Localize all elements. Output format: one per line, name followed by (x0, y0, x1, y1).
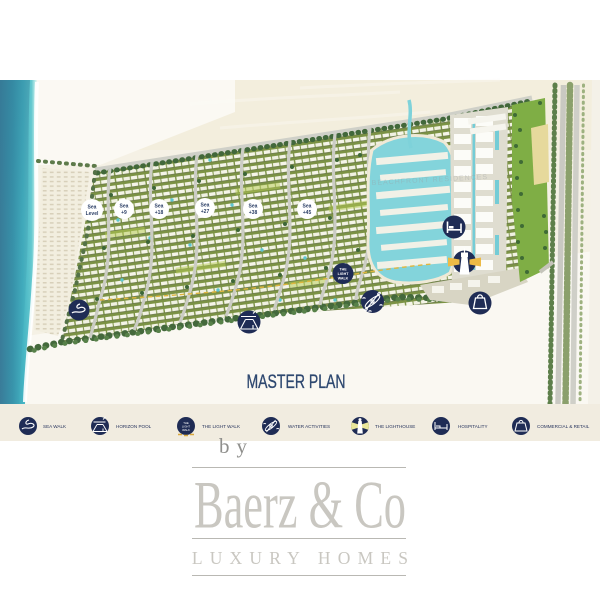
svg-text:Level: Level (86, 211, 99, 217)
svg-text:Sea: Sea (201, 203, 210, 209)
svg-text:+38: +38 (249, 210, 258, 216)
svg-text:Sea: Sea (303, 204, 312, 210)
svg-text:HORIZON POOL: HORIZON POOL (116, 424, 152, 429)
svg-text:THE: THE (339, 268, 347, 272)
svg-text:Sea: Sea (88, 205, 97, 211)
svg-text:+18: +18 (155, 210, 164, 216)
svg-text:WALK: WALK (182, 428, 190, 432)
svg-text:+45: +45 (303, 210, 312, 216)
svg-text:Sea: Sea (120, 204, 129, 210)
svg-text:Sea: Sea (249, 204, 258, 210)
svg-text:COMMERCIAL & RETAIL: COMMERCIAL & RETAIL (537, 424, 590, 429)
svg-text:WATER ACTIVITIES: WATER ACTIVITIES (288, 424, 330, 429)
svg-text:WALK: WALK (338, 277, 349, 281)
svg-text:THE LIGHT WALK: THE LIGHT WALK (202, 424, 241, 429)
svg-text:HOSPITALITY: HOSPITALITY (458, 424, 488, 429)
svg-text:SEA WALK: SEA WALK (43, 424, 67, 429)
svg-text:by: by (219, 434, 254, 458)
svg-text:LIGHT: LIGHT (338, 272, 350, 276)
svg-text:Baerz & Co: Baerz & Co (194, 467, 406, 543)
svg-text:+9: +9 (121, 210, 127, 216)
svg-text:+27: +27 (201, 209, 210, 215)
svg-text:LUXURY HOMES: LUXURY HOMES (192, 548, 415, 568)
svg-text:THE LIGHTHOUSE: THE LIGHTHOUSE (375, 424, 415, 429)
svg-text:MASTER PLAN: MASTER PLAN (247, 371, 346, 393)
svg-text:Sea: Sea (155, 204, 164, 210)
